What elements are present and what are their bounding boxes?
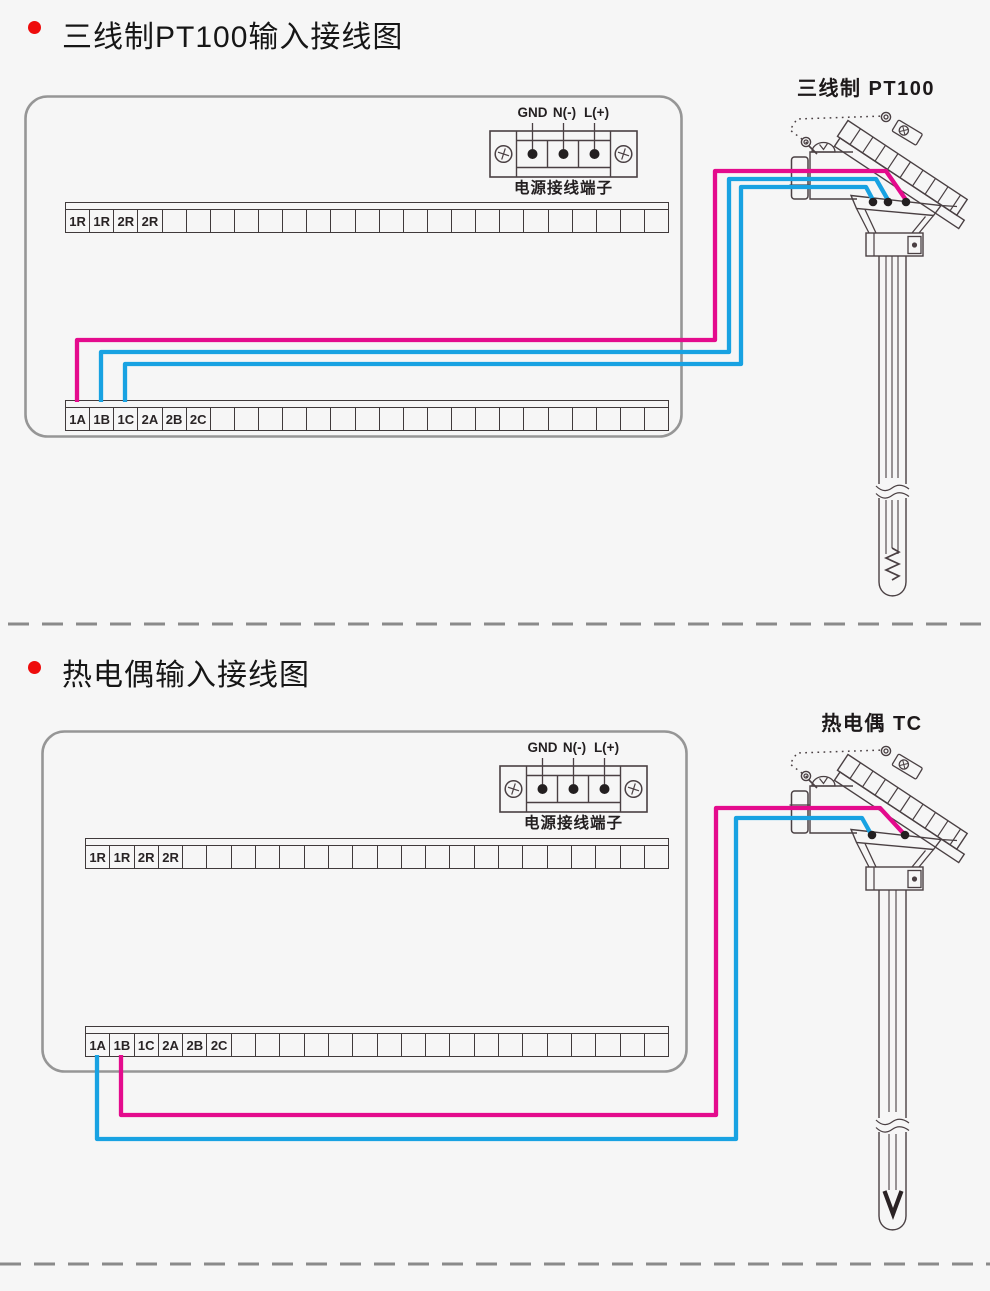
- terminal-cell: [380, 210, 404, 232]
- terminal-cell: [500, 408, 524, 430]
- probe-break: [876, 1119, 909, 1132]
- terminal-cell: [476, 408, 500, 430]
- terminal-cell: [402, 1034, 426, 1056]
- terminal-cell: [283, 210, 307, 232]
- strip-cells: 1R1R2R2R: [86, 846, 668, 868]
- terminal-cell: [452, 408, 476, 430]
- terminal-housing: [851, 196, 941, 216]
- power-caption: 电源接线端子: [514, 178, 613, 197]
- terminal-cell: [331, 210, 355, 232]
- probe-wires: [889, 890, 896, 1190]
- probe-wires: [886, 256, 898, 554]
- neck-taper: [857, 843, 934, 868]
- terminal-cell: [163, 210, 187, 232]
- terminal-cell: 1A: [86, 1034, 110, 1056]
- power-terminal-block-bottom: GNDN(-)L(+)电源接线端子: [500, 740, 647, 832]
- terminal-cell: [573, 408, 597, 430]
- chain-eyelet-left-icon: [801, 771, 817, 788]
- terminal-cell: [305, 846, 329, 868]
- terminal-cell: [256, 1034, 280, 1056]
- mount-screw-icon: [495, 146, 512, 163]
- clamp-block: [866, 867, 923, 890]
- terminal-cell: 1A: [66, 408, 90, 430]
- terminal-cell: [499, 1034, 523, 1056]
- hex-nut: [790, 791, 811, 833]
- section2-bullet-icon: [28, 661, 41, 674]
- terminal-cell: [645, 846, 668, 868]
- chain-dotted-line: [790, 750, 884, 777]
- terminal-cell: [573, 210, 597, 232]
- terminal-cell: [402, 846, 426, 868]
- terminal-cell: 2B: [183, 1034, 207, 1056]
- terminal-cell: [450, 846, 474, 868]
- terminal-cell: [187, 210, 211, 232]
- hex-nut: [790, 157, 811, 199]
- section2-title: 热电偶输入接线图: [62, 650, 310, 694]
- terminal-cell: [356, 210, 380, 232]
- terminal-cell: 1R: [110, 846, 134, 868]
- terminal-cell: [475, 846, 499, 868]
- terminal-strip-a-bottom: 1A1B1C2A2B2C: [85, 1026, 669, 1057]
- head-body: [810, 786, 857, 833]
- power-terminal-dot: [528, 149, 538, 159]
- terminal-cell: [280, 846, 304, 868]
- terminal-cell: [211, 210, 235, 232]
- terminal-cell: [475, 1034, 499, 1056]
- terminal-cell: [645, 210, 668, 232]
- terminal-cell: [524, 408, 548, 430]
- head-body: [810, 152, 857, 199]
- terminal-cell: [450, 1034, 474, 1056]
- terminal-cell: [207, 846, 231, 868]
- terminal-cell: 2R: [114, 210, 138, 232]
- screw-cap: [832, 754, 975, 862]
- terminal-cell: [329, 1034, 353, 1056]
- terminal-cell: [404, 408, 428, 430]
- strip-top-band: [86, 1027, 668, 1034]
- terminal-cell: [283, 408, 307, 430]
- terminal-cell: [476, 210, 500, 232]
- probe-tube: [879, 890, 906, 1216]
- terminal-cell: [183, 846, 207, 868]
- power-label: GND: [528, 740, 558, 755]
- diagram-artwork: GNDN(-)L(+)电源接线端子 GNDN(-)L(+)电源接线端子 三线制 …: [0, 0, 990, 1291]
- power-terminal-dot: [590, 149, 600, 159]
- cap-bracket: [892, 754, 923, 780]
- strip-top-band: [66, 203, 668, 210]
- terminal-cell: [524, 210, 548, 232]
- chain-eyelet-top-icon: [881, 746, 890, 755]
- power-label: N(-): [563, 740, 586, 755]
- terminal-cell: 2A: [159, 1034, 183, 1056]
- terminal-cell: [259, 408, 283, 430]
- terminal-housing: [851, 830, 941, 850]
- terminal-cell: 1B: [90, 408, 114, 430]
- power-label: L(+): [584, 105, 609, 120]
- terminal-cell: [428, 408, 452, 430]
- terminal-cell: 2C: [187, 408, 211, 430]
- terminal-cell: 1C: [135, 1034, 159, 1056]
- terminal-cell: [621, 408, 645, 430]
- terminal-cell: [259, 210, 283, 232]
- terminal-cell: [523, 1034, 547, 1056]
- terminal-cell: [596, 846, 620, 868]
- terminal-cell: [428, 210, 452, 232]
- terminal-cell: [426, 1034, 450, 1056]
- terminal-cell: [426, 846, 450, 868]
- terminal-cell: [211, 408, 235, 430]
- chain-eyelet-left-icon: [801, 137, 817, 154]
- power-label: L(+): [594, 740, 619, 755]
- sensor-tc: [790, 746, 975, 1229]
- dome-screw-icon: [812, 777, 835, 787]
- terminal-cell: [597, 408, 621, 430]
- tc-junction-icon: [885, 1191, 902, 1214]
- terminal-cell: [572, 1034, 596, 1056]
- rtd-element-icon: [886, 548, 899, 580]
- terminal-cell: [232, 846, 256, 868]
- strip-top-band: [66, 401, 668, 408]
- terminal-cell: [329, 846, 353, 868]
- power-terminal-dot: [569, 784, 579, 794]
- clamp-block: [866, 233, 923, 256]
- probe-break: [876, 485, 909, 498]
- section1-bullet-icon: [28, 21, 41, 34]
- terminal-cell: [404, 210, 428, 232]
- wiring-diagram-page: 三线制PT100输入接线图 热电偶输入接线图 1R1R2R2R 1A1B1C2A…: [0, 0, 990, 1291]
- mount-screw-icon: [625, 781, 642, 798]
- terminal-cell: [378, 1034, 402, 1056]
- terminal-strip-r-top: 1R1R2R2R: [65, 202, 669, 233]
- strip-cells: 1A1B1C2A2B2C: [66, 408, 668, 430]
- terminal-cell: [549, 408, 573, 430]
- sensor-label-tc: 热电偶 TC: [821, 711, 922, 735]
- terminal-cell: [452, 210, 476, 232]
- terminal-cell: [549, 210, 573, 232]
- neck-taper: [857, 209, 934, 234]
- terminal-cell: [572, 846, 596, 868]
- power-terminal-dot: [600, 784, 610, 794]
- terminal-strip-a-top: 1A1B1C2A2B2C: [65, 400, 669, 431]
- terminal-cell: [548, 1034, 572, 1056]
- probe-tube: [879, 256, 906, 582]
- terminal-cell: [499, 846, 523, 868]
- terminal-cell: 2A: [138, 408, 162, 430]
- screw-cap: [832, 120, 975, 228]
- cap-bracket: [892, 120, 923, 146]
- mount-screw-icon: [505, 781, 522, 798]
- terminal-cell: 2B: [163, 408, 187, 430]
- instrument-box-top: [26, 97, 682, 437]
- terminal-cell: [280, 1034, 304, 1056]
- terminal-cell: [645, 1034, 668, 1056]
- terminal-cell: [235, 210, 259, 232]
- terminal-cell: [307, 210, 331, 232]
- power-caption: 电源接线端子: [524, 813, 623, 832]
- terminal-cell: 2C: [207, 1034, 231, 1056]
- terminal-cell: [621, 846, 645, 868]
- terminal-cell: [256, 846, 280, 868]
- sensor-terminal-dots: [868, 198, 911, 840]
- terminal-strip-r-bottom: 1R1R2R2R: [85, 838, 669, 869]
- power-label: N(-): [553, 105, 576, 120]
- terminal-cell: [548, 846, 572, 868]
- mount-screw-icon: [615, 146, 632, 163]
- terminal-cell: [232, 1034, 256, 1056]
- terminal-cell: [621, 210, 645, 232]
- terminal-cell: 2R: [138, 210, 162, 232]
- terminal-cell: [378, 846, 402, 868]
- instrument-box-bottom: [43, 732, 687, 1072]
- strip-top-band: [86, 839, 668, 846]
- sensor-label-pt100: 三线制 PT100: [797, 76, 935, 100]
- terminal-cell: 1R: [86, 846, 110, 868]
- power-label: GND: [518, 105, 548, 120]
- terminal-cell: [235, 408, 259, 430]
- strip-cells: 1R1R2R2R: [66, 210, 668, 232]
- terminal-cell: [356, 408, 380, 430]
- terminal-cell: [307, 408, 331, 430]
- terminal-cell: [596, 1034, 620, 1056]
- terminal-cell: [597, 210, 621, 232]
- terminal-cell: 1C: [114, 408, 138, 430]
- terminal-cell: [645, 408, 668, 430]
- terminal-cell: 2R: [135, 846, 159, 868]
- chain-eyelet-top-icon: [881, 112, 890, 121]
- power-terminal-block-top: GNDN(-)L(+)电源接线端子: [490, 105, 637, 197]
- terminal-cell: [621, 1034, 645, 1056]
- terminal-cell: 1B: [110, 1034, 134, 1056]
- dome-screw-icon: [812, 143, 835, 153]
- terminal-cell: [500, 210, 524, 232]
- terminal-cell: [353, 1034, 377, 1056]
- sensor-pt100: [790, 112, 975, 595]
- terminal-cell: [523, 846, 547, 868]
- terminal-cell: [353, 846, 377, 868]
- terminal-cell: 2R: [159, 846, 183, 868]
- power-terminal-dot: [538, 784, 548, 794]
- terminal-cell: [305, 1034, 329, 1056]
- power-terminal-dot: [559, 149, 569, 159]
- strip-cells: 1A1B1C2A2B2C: [86, 1034, 668, 1056]
- chain-dotted-line: [790, 116, 884, 143]
- terminal-cell: 1R: [90, 210, 114, 232]
- terminal-cell: 1R: [66, 210, 90, 232]
- terminal-cell: [331, 408, 355, 430]
- section1-title: 三线制PT100输入接线图: [62, 12, 403, 56]
- terminal-cell: [380, 408, 404, 430]
